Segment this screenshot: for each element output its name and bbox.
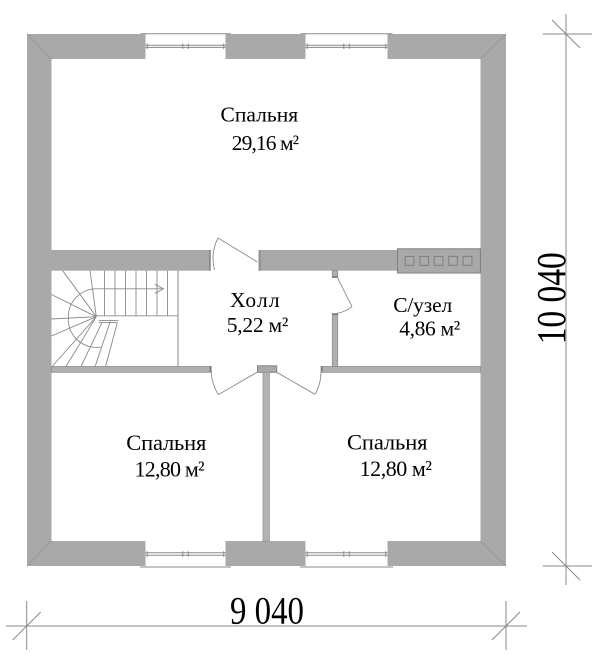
svg-text:Спальня: Спальня [126, 430, 206, 455]
svg-text:Спальня: Спальня [347, 429, 428, 454]
svg-text:29,16 м²: 29,16 м² [232, 131, 299, 155]
svg-text:9 040: 9 040 [230, 590, 304, 632]
svg-text:5,22 м²: 5,22 м² [227, 313, 289, 337]
svg-text:12,80 м²: 12,80 м² [360, 456, 433, 481]
svg-text:12,80 м²: 12,80 м² [135, 457, 205, 482]
svg-text:Спальня: Спальня [221, 103, 299, 127]
svg-text:10 040: 10 040 [528, 252, 574, 344]
svg-text:С/узел: С/узел [393, 293, 452, 317]
svg-text:Холл: Холл [230, 288, 280, 312]
svg-text:4,86 м²: 4,86 м² [399, 317, 460, 341]
